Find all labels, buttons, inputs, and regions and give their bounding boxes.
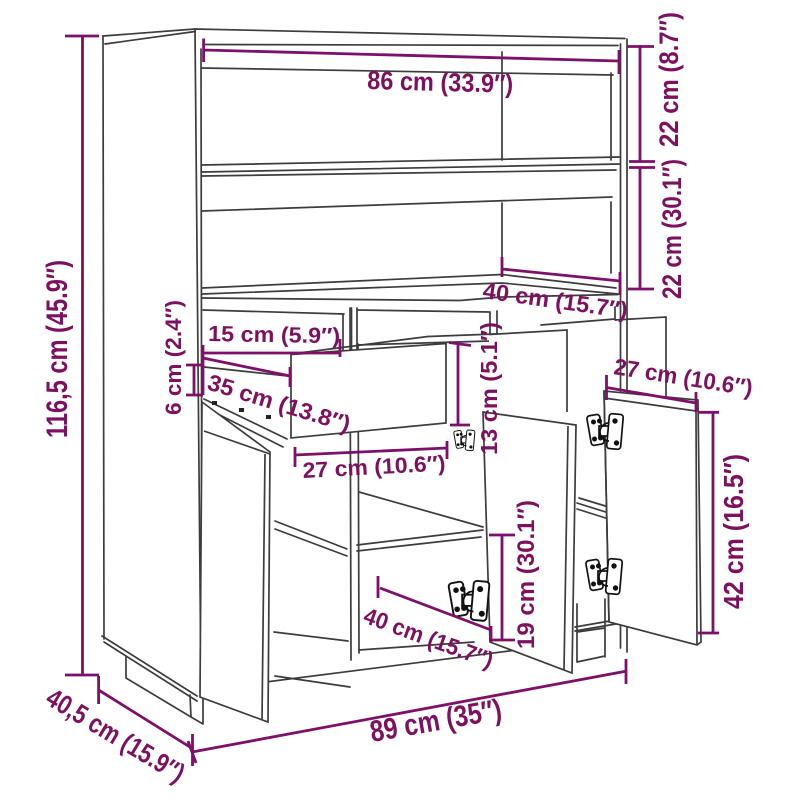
svg-text:13 cm (5.1″): 13 cm (5.1″): [476, 322, 502, 455]
svg-text:6 cm (2.4″): 6 cm (2.4″): [161, 300, 186, 415]
svg-text:15 cm (5.9″): 15 cm (5.9″): [208, 321, 340, 348]
svg-text:22 cm (8.7″): 22 cm (8.7″): [654, 12, 684, 147]
svg-text:116,5 cm (45.9″): 116,5 cm (45.9″): [41, 260, 74, 438]
svg-text:42 cm (16.5″): 42 cm (16.5″): [718, 454, 749, 609]
svg-text:22 cm (30.1″): 22 cm (30.1″): [657, 159, 687, 299]
svg-text:86 cm (33.9″): 86 cm (33.9″): [367, 65, 514, 99]
svg-text:19 cm (30.1″): 19 cm (30.1″): [513, 500, 540, 649]
